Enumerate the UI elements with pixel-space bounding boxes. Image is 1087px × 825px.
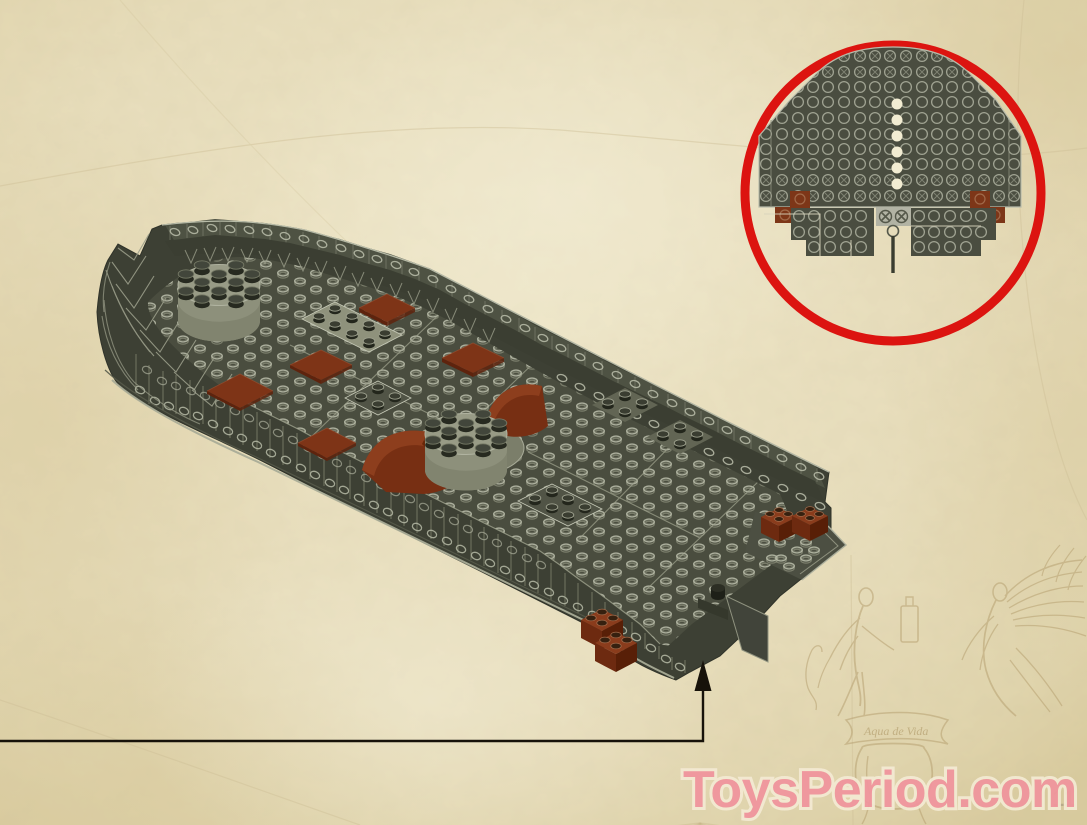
svg-text:Aqua de Vida: Aqua de Vida: [863, 724, 928, 738]
svg-text:ToysPeriod.com: ToysPeriod.com: [683, 761, 1077, 819]
